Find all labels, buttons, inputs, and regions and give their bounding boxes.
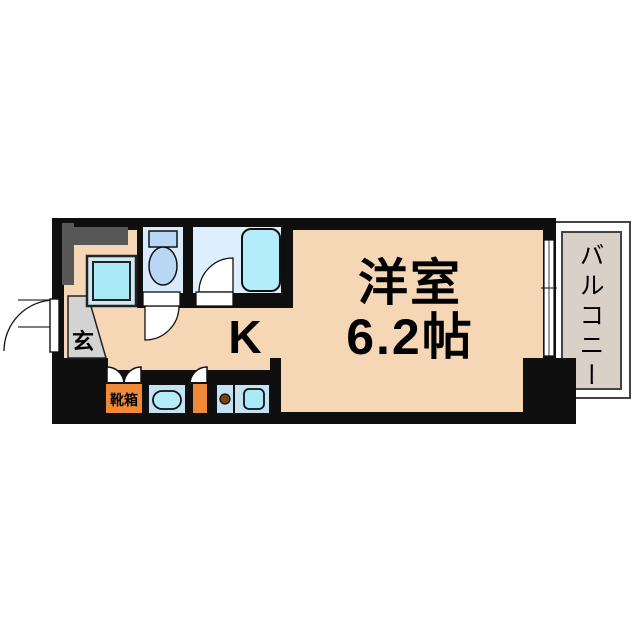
entrance-door-leaf	[50, 299, 59, 352]
pipe-shaft-vertical	[62, 223, 74, 285]
floor-plan: 洋室 6.2帖 K 玄 靴箱 バルコニー	[0, 0, 640, 640]
main-room-name: 洋室	[300, 256, 520, 310]
counter-appliance-icon	[244, 389, 264, 409]
entrance-door-arc	[4, 300, 55, 351]
pipe-shaft-horizontal	[74, 227, 128, 245]
entrance-label: 玄	[68, 324, 98, 356]
toilet-door-leaf	[143, 292, 180, 306]
bathroom-door-leaf	[196, 292, 233, 306]
toilet-tank-icon	[149, 231, 177, 247]
balcony-label: バルコニー	[578, 242, 608, 392]
toilet-bowl-icon	[149, 247, 177, 285]
main-room-label: 洋室 6.2帖	[300, 256, 520, 364]
kitchen-label: K	[220, 310, 270, 364]
bathtub-icon	[242, 229, 280, 291]
stove-burner-icon	[220, 394, 230, 404]
washing-machine-icon	[93, 262, 130, 300]
sink-basin-icon	[153, 391, 181, 409]
water-heater-column	[192, 383, 208, 414]
corner-wall-block	[523, 358, 576, 424]
shoebox-label: 靴箱	[104, 390, 144, 410]
main-room-size: 6.2帖	[300, 310, 520, 364]
